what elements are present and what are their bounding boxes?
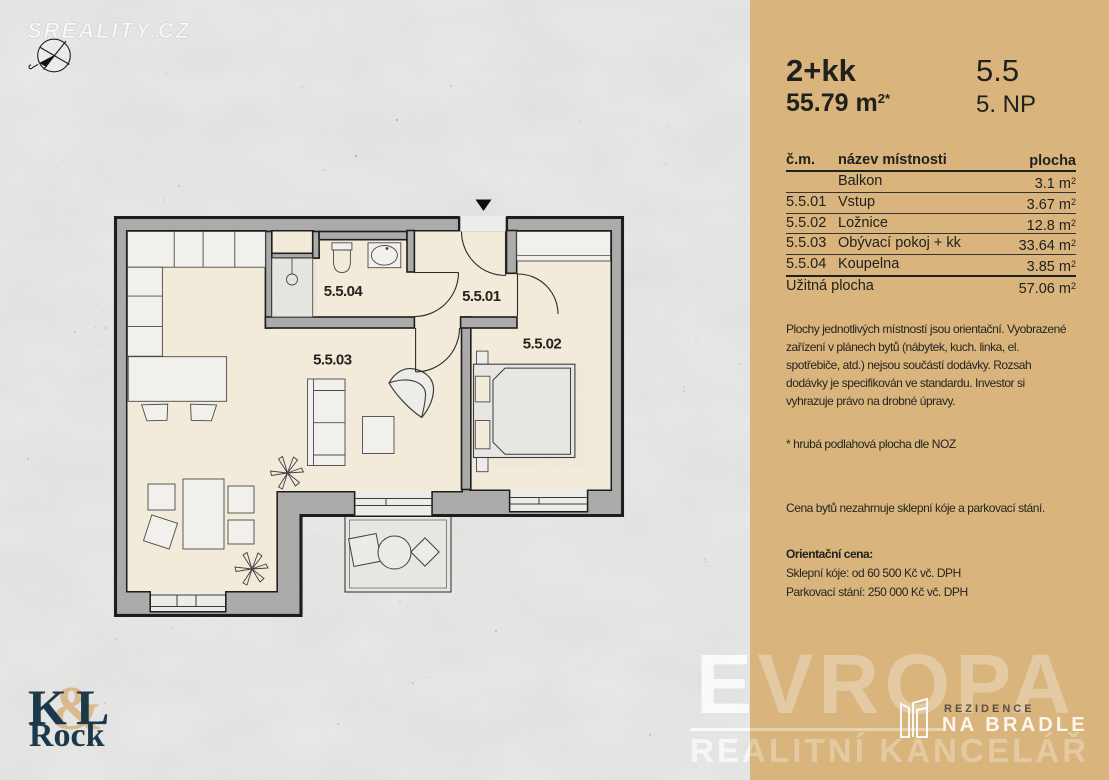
svg-text:5.5.01: 5.5.01 <box>462 288 501 305</box>
svg-text:5.5.02: 5.5.02 <box>523 336 562 353</box>
svg-text:5.5.03: 5.5.03 <box>313 352 352 369</box>
svg-text:5.5.04: 5.5.04 <box>324 283 364 300</box>
